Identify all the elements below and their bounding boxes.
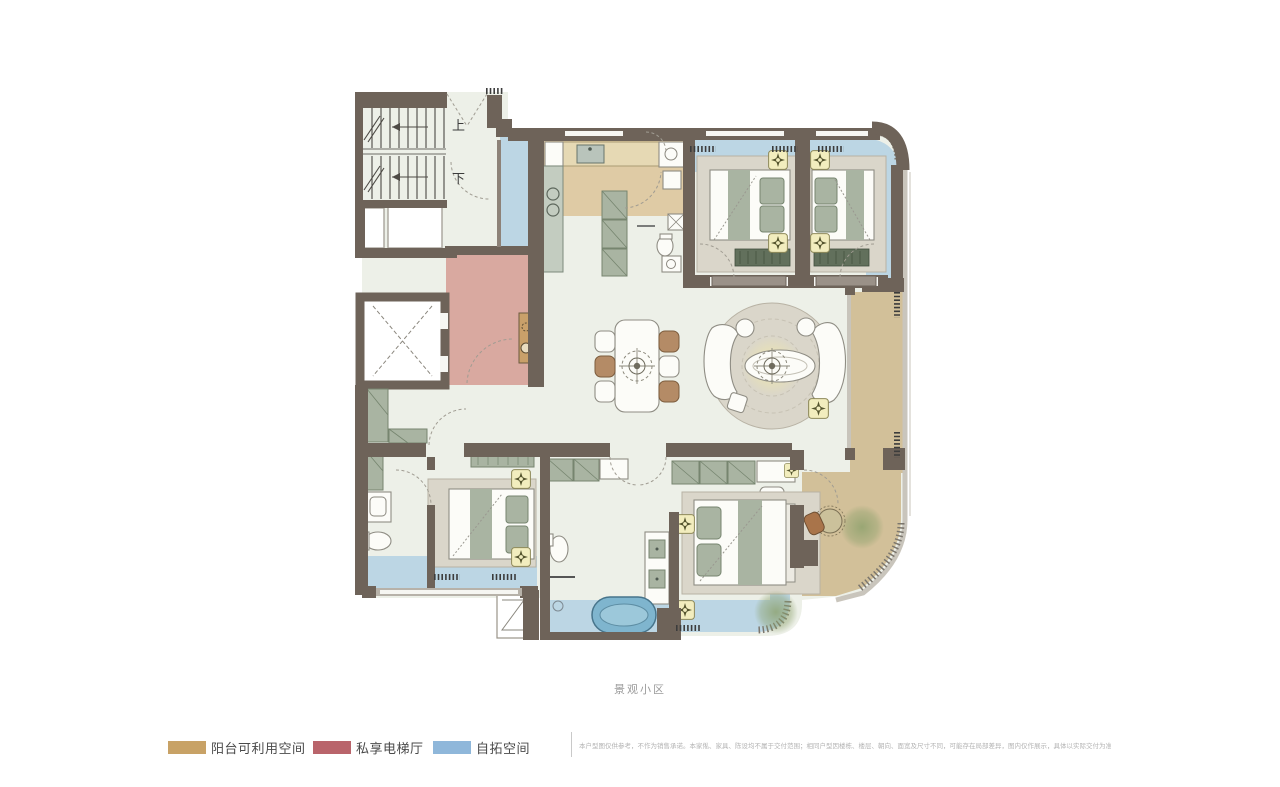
floor-plan-drawing: 上 下 [0,0,1280,787]
self-expansion-entry-strip [500,132,530,247]
stool [736,319,754,337]
legend-item-balcony: 阳台可利用空间 [168,738,306,757]
dining-area [595,320,679,412]
dining-chair [595,331,615,352]
nightstand-lamp [512,548,531,567]
nightstand-lamp [769,151,788,170]
nightstand-lamp [811,151,830,170]
kitchen-fridge [545,142,563,166]
kitchen-counter [543,166,563,272]
stair-lobby [360,206,442,248]
legend-label-balcony: 阳台可利用空间 [211,738,306,757]
legend-swatch-elevator-hall [313,741,351,754]
legend-label-self-expansion: 自拓空间 [476,738,530,757]
legend-swatch-self-expansion [433,741,471,754]
washer [659,142,684,167]
legend-divider [571,732,572,757]
side-table-lamp [809,399,829,419]
nightstand-lamp [811,234,830,253]
dining-chair [595,381,615,402]
sliding-door [816,276,876,286]
sliding-door [712,276,786,286]
nightstand-lamp [512,470,531,489]
legend-item-elevator-hall: 私享电梯厅 [313,738,424,757]
plant-bush [840,505,884,549]
bedroom-top-left [697,151,797,272]
disclaimer-text: 本户型图仅供参考，不作为销售承诺。本家俬、家具、陈设均不属于交付范围；相同户型因… [579,740,1111,750]
dining-chair [659,356,679,377]
plan-caption: 景观小区 [0,681,1280,697]
elevator-shaft [360,297,448,385]
dining-chair [659,381,679,402]
stair-up-label: 上 [452,118,465,133]
dining-chair [595,356,615,377]
legend-item-self-expansion: 自拓空间 [433,738,530,757]
stool [797,318,815,336]
vanity [662,256,681,272]
stair-down-label: 下 [452,171,465,186]
nightstand-lamp [769,234,788,253]
legend-swatch-balcony [168,741,206,754]
bedroom-top-right [810,151,886,272]
legend-label-elevator-hall: 私享电梯厅 [356,738,424,757]
plant-bush [754,590,798,634]
floor-plan-page: { "plan": { "caption": "景观小区", "stair_up… [0,0,1280,787]
dining-chair [659,331,679,352]
